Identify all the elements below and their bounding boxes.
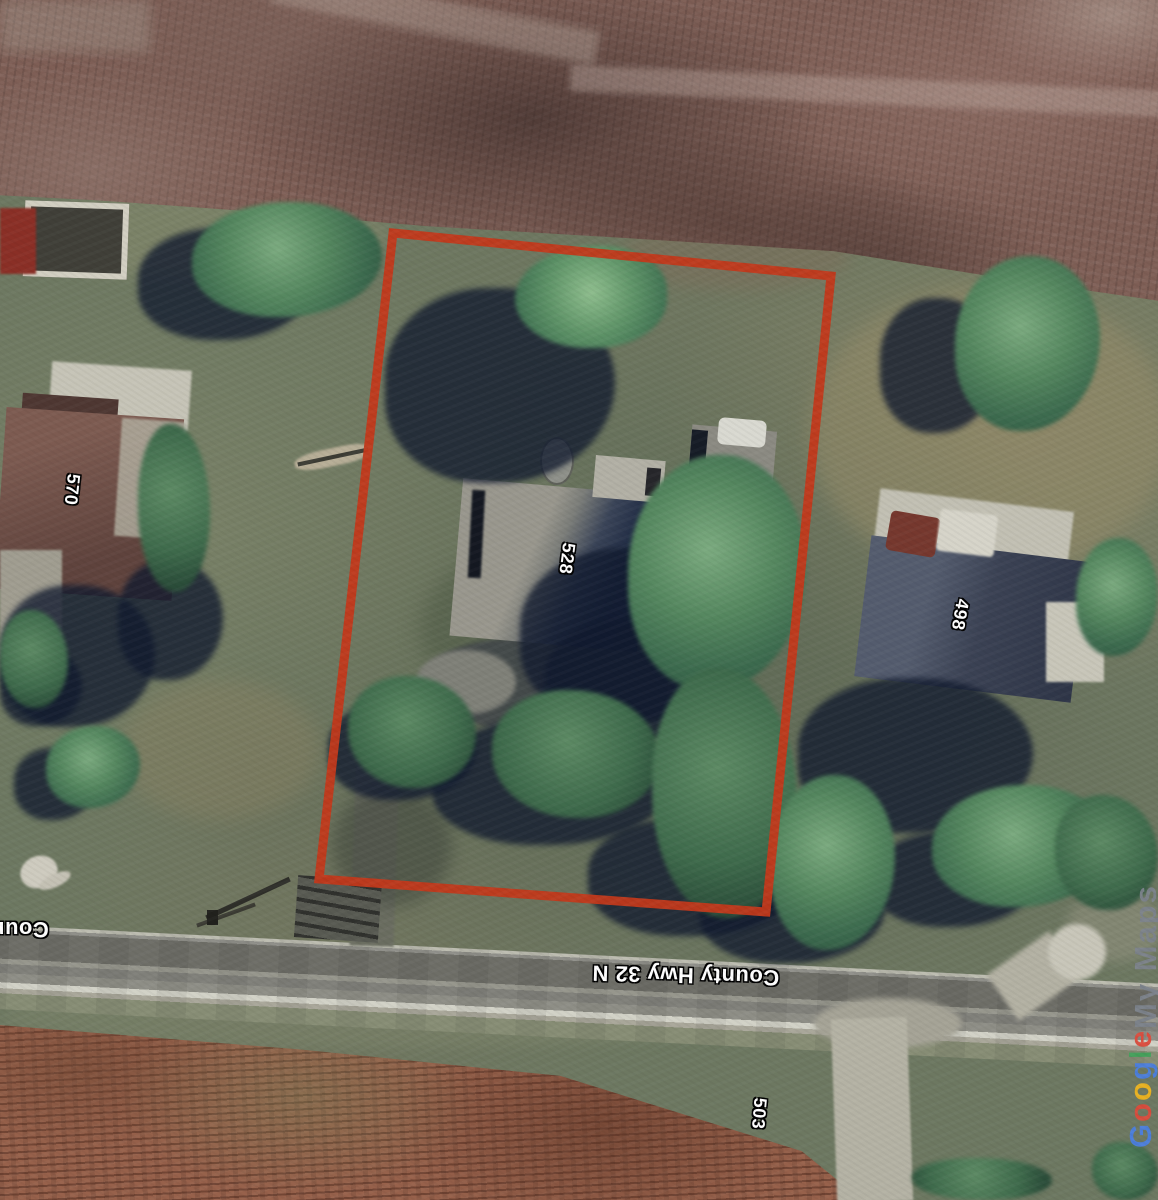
google-logo-letter: e: [1123, 1029, 1158, 1048]
label-house-570: 570: [60, 473, 84, 507]
satellite-map[interactable]: 570 528 498 503 County Hwy 32 N County G…: [0, 0, 1158, 1200]
road-label-partial: County: [0, 916, 49, 942]
google-logo-letter: l: [1123, 1048, 1158, 1059]
google-logo-letter: G: [1123, 1122, 1158, 1148]
label-house-528: 528: [554, 542, 579, 576]
google-logo-letter: g: [1123, 1059, 1158, 1080]
my-maps-text: My Maps: [1128, 884, 1158, 1029]
property-boundary-overlay: [0, 0, 1158, 1200]
label-house-503: 503: [747, 1097, 771, 1130]
road-label: County Hwy 32 N: [592, 960, 780, 991]
google-logo-letter: o: [1123, 1080, 1158, 1101]
google-my-maps-watermark[interactable]: GoogleMy Maps: [1121, 848, 1158, 1148]
google-logo-letter: o: [1123, 1101, 1158, 1122]
